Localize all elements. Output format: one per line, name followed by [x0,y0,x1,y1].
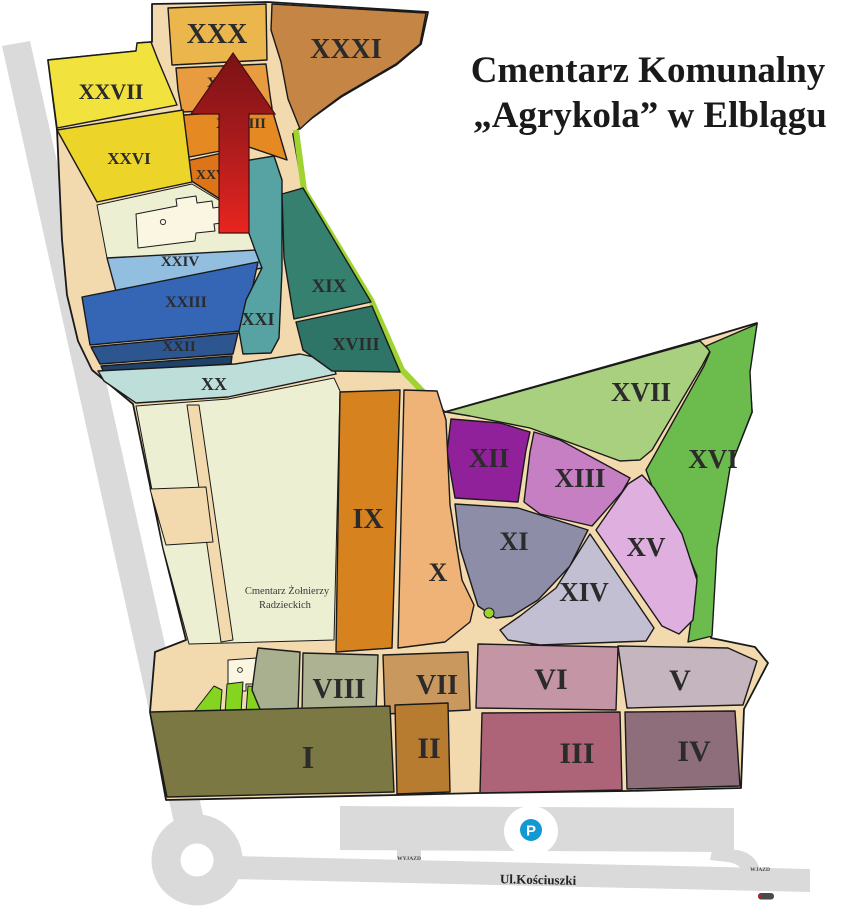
entrance-label: WJAZD [750,867,770,873]
section-XVI-label: XVI [688,444,738,474]
page-title: Cmentarz Komunalny „Agrykola” w Elblągu [471,50,827,136]
section-I-label: I [302,739,314,775]
section-X-label: X [429,558,448,587]
section-XII-label: XII [469,443,510,473]
section-XVII-label: XVII [611,377,671,407]
parking-sign: P [504,806,558,856]
car-light [758,894,761,897]
section-VIII-label: VIII [313,674,366,705]
section-XIV-label: XIV [559,577,609,607]
section-III-label: III [559,737,594,770]
section-IX-label: IX [352,504,383,535]
street-label-kosciuszki: Ul.Kościuszki [500,871,577,888]
section-XI-label: XI [500,527,529,556]
parking-sign-letter: P [526,823,536,840]
section-XXI-label: XXI [241,309,274,329]
exit-label: WYJAZD [397,856,421,862]
section-XXVII-label: XXVII [79,79,144,104]
section-XVIII-label: XVIII [332,334,379,354]
section-XV-label: XV [627,532,666,562]
section-II-label: II [417,732,440,765]
section-XXII-label: XXII [162,339,196,355]
section-XIX-label: XIX [312,276,347,297]
sage-wedge[interactable] [252,648,300,714]
section-XXIV-label: XXIV [161,254,200,270]
section-VI-label: VI [534,663,567,696]
roundabout-outer [166,829,228,891]
section-V-label: V [669,664,691,697]
soviet-cemetery-label-line1: Cmentarz Żołnierzy [245,585,330,597]
cemetery-map-svg: Ul.Agrykola Ul.Kościuszki WYJAZD WJAZD P… [0,0,851,923]
title-line-1: Cmentarz Komunalny [471,50,826,91]
inner-path-square [150,487,213,545]
cemetery-plan-page: Ul.Agrykola Ul.Kościuszki WYJAZD WJAZD P… [0,0,851,923]
section-III-area[interactable] [480,712,622,793]
section-XXXI-label: XXXI [310,34,382,65]
section-XIX-area[interactable] [282,188,371,319]
hub-tree [484,608,494,618]
section-XXIII-label: XXIII [165,294,207,311]
section-IV-label: IV [677,735,711,768]
section-XXX-label: XXX [187,19,248,50]
title-line-2: „Agrykola” w Elblągu [473,95,827,136]
section-VII-label: VII [416,670,458,701]
section-XIII-label: XIII [554,463,605,493]
section-I-area[interactable] [150,706,394,797]
section-XXXI-area[interactable] [271,4,426,129]
soviet-cemetery-label-line2: Radzieckich [259,600,312,611]
section-XX-label: XX [201,374,227,394]
car-icon [758,893,774,900]
section-XXVI-label: XXVI [107,149,151,168]
